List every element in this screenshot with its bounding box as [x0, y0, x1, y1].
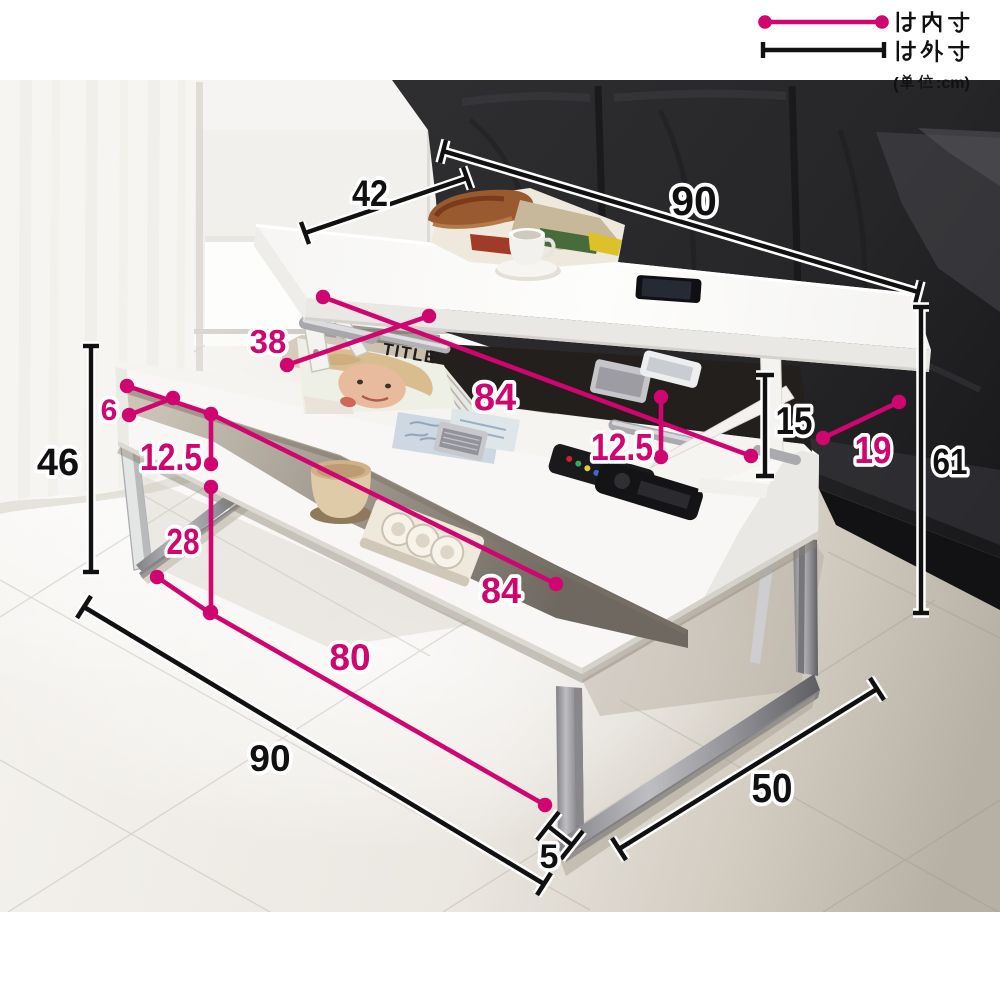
svg-text:12.5: 12.5 [591, 427, 653, 469]
svg-text:12.5: 12.5 [140, 437, 202, 479]
svg-text:28: 28 [167, 521, 200, 562]
svg-text:19: 19 [855, 430, 892, 472]
svg-text:84: 84 [474, 377, 516, 419]
svg-text:90: 90 [671, 178, 717, 224]
svg-text:46: 46 [37, 442, 79, 484]
svg-text::cm): :cm) [936, 75, 970, 92]
svg-text:50: 50 [752, 765, 793, 811]
svg-text:61: 61 [933, 441, 968, 482]
svg-text:80: 80 [329, 637, 370, 678]
svg-text:6: 6 [101, 394, 118, 427]
svg-text:(: ( [893, 74, 899, 93]
svg-text:38: 38 [250, 323, 287, 360]
svg-text:90: 90 [249, 738, 290, 779]
svg-text:5: 5 [540, 838, 559, 876]
svg-text:15: 15 [776, 400, 813, 443]
svg-text:42: 42 [352, 173, 388, 214]
svg-text:84: 84 [481, 570, 521, 611]
